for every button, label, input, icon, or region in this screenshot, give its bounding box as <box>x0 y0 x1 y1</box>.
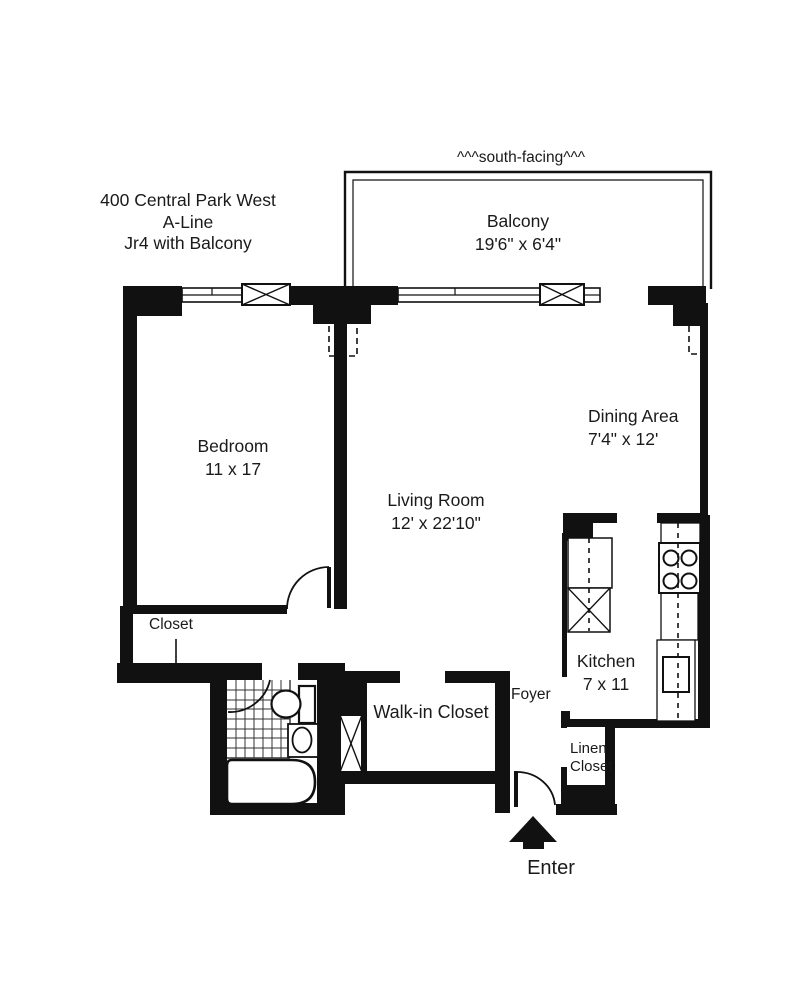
wic-unit-box-icon <box>340 715 362 772</box>
wall-segment <box>562 533 567 677</box>
wall-segment <box>563 513 593 541</box>
wall-segment <box>495 671 510 813</box>
wall-segment <box>123 605 287 614</box>
label-enter: Enter <box>527 858 575 878</box>
wall-segment <box>290 286 398 305</box>
enter-arrow-icon <box>509 816 557 849</box>
room-name: Living Room <box>387 489 484 512</box>
plan-title-line2: A-Line <box>100 212 276 234</box>
room-name: Kitchen <box>577 650 635 673</box>
walls <box>117 286 710 815</box>
room-name: Balcony <box>475 210 561 233</box>
label-living-room: Living Room 12' x 22'10" <box>387 489 484 535</box>
room-name: Bedroom <box>197 435 268 458</box>
label-balcony: Balcony 19'6" x 6'4" <box>475 210 561 256</box>
room-dimensions: 7 x 11 <box>577 673 635 696</box>
ac-unit-2-icon <box>540 284 584 305</box>
plan-title-line1: 400 Central Park West <box>100 190 276 212</box>
room-name-line2: Closet <box>570 758 613 776</box>
wall-segment <box>648 286 706 305</box>
kitchen-sink-icon <box>663 657 689 692</box>
radiator-dashed-box-2 <box>689 326 701 354</box>
plan-title: 400 Central Park West A-Line Jr4 with Ba… <box>100 190 276 255</box>
window-2 <box>398 288 540 302</box>
stove-icon <box>659 543 700 593</box>
label-kitchen: Kitchen 7 x 11 <box>577 650 635 696</box>
orientation-note: ^^^south-facing^^^ <box>457 149 585 167</box>
window-1 <box>182 288 242 302</box>
wall-segment <box>700 303 708 515</box>
bathroom-sink-icon <box>288 724 318 757</box>
wall-segment <box>334 303 347 609</box>
ac-unit-1-icon <box>242 284 290 305</box>
room-dimensions: 19'6" x 6'4" <box>475 233 561 256</box>
label-bedroom: Bedroom 11 x 17 <box>197 435 268 481</box>
wall-segment <box>123 286 137 608</box>
room-dimensions: 11 x 17 <box>197 458 268 481</box>
wall-segment <box>117 663 210 683</box>
wall-segment <box>561 711 570 728</box>
label-closet: Closet <box>149 616 193 634</box>
room-name: Dining Area <box>588 405 678 428</box>
label-walk-in-closet: Walk-in Closet <box>373 703 488 721</box>
label-linen-closet: Linen Closet <box>570 740 613 775</box>
label-dining-area: Dining Area 7'4" x 12' <box>588 405 678 451</box>
plan-title-line3: Jr4 with Balcony <box>100 233 276 255</box>
bathtub-icon <box>227 760 315 804</box>
room-dimensions: 7'4" x 12' <box>588 428 678 451</box>
wall-segment <box>556 804 617 815</box>
room-dimensions: 12' x 22'10" <box>387 512 484 535</box>
window-stub <box>584 288 600 302</box>
label-foyer: Foyer <box>511 686 551 704</box>
kitchen-counter-left <box>568 538 612 588</box>
wall-segment <box>561 767 567 787</box>
wall-segment <box>657 513 702 523</box>
floor-plan: 400 Central Park West A-Line Jr4 with Ba… <box>0 0 787 1000</box>
wall-segment <box>445 671 498 683</box>
bedroom-door <box>287 567 331 609</box>
entry-door <box>514 771 555 807</box>
bathroom-door-opening <box>262 661 298 682</box>
room-name-line1: Linen <box>570 740 613 758</box>
